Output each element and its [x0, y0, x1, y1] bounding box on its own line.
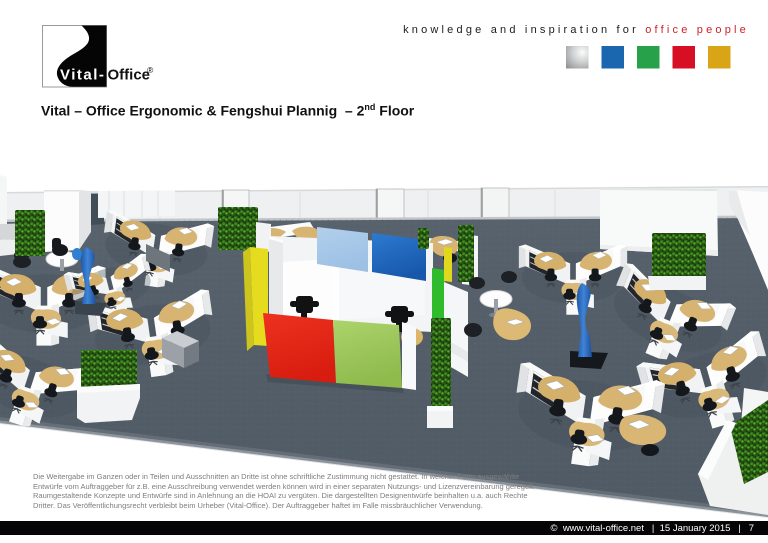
svg-text:®: ®	[147, 65, 154, 75]
svg-text:Office: Office	[108, 67, 151, 84]
svg-text:Vital-: Vital-	[60, 67, 105, 84]
